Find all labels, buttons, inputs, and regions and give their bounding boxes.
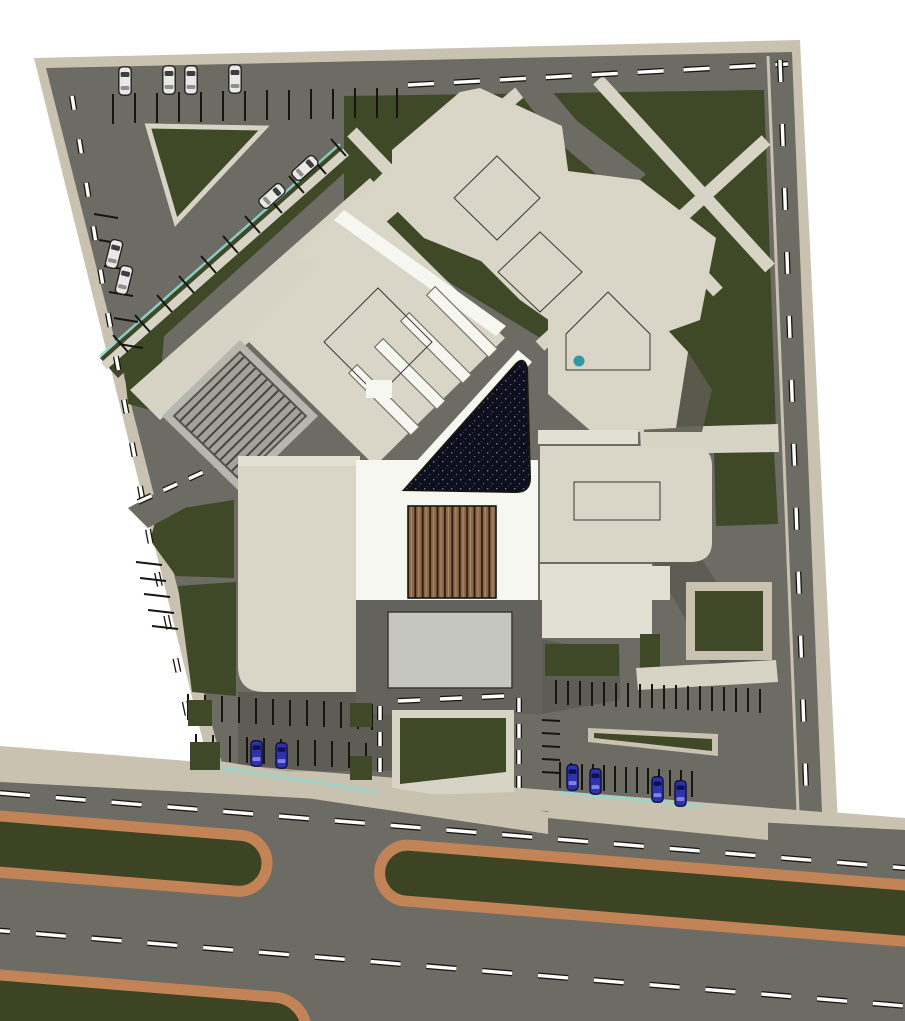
sw-lot-green-4 [350, 756, 372, 780]
parked-car-blue [652, 777, 663, 803]
framed-lawn-inner [695, 591, 763, 651]
lawn-west-c [178, 582, 236, 696]
sw-lot-green-1 [188, 700, 212, 726]
roof-band-east [538, 430, 638, 444]
sw-lot-green-2 [350, 703, 372, 727]
roof-south-annex [540, 564, 652, 638]
parked-car-white [185, 66, 197, 94]
parked-car-blue [675, 781, 686, 807]
roof-southeast-rounded [540, 446, 712, 562]
east-lawn-b [640, 634, 660, 672]
parked-car-white [119, 67, 131, 95]
parked-car-white [163, 66, 175, 94]
roof-southwest-rounded [238, 456, 360, 692]
parked-car-blue [276, 743, 287, 769]
parked-car-blue [590, 769, 601, 795]
skylight-teal-dot [574, 356, 585, 367]
roof-southwest-trim [238, 456, 360, 466]
parked-car-blue [567, 765, 578, 791]
entry-court [380, 696, 519, 796]
entrance-canopy [388, 612, 512, 688]
site-plan-screenshot [0, 0, 905, 1021]
parked-car-white [229, 65, 241, 93]
sw-lot-green-3 [190, 742, 220, 770]
parked-car-blue [251, 741, 262, 767]
louver-roof [408, 506, 496, 598]
east-lawn-a [545, 644, 619, 676]
lawn-right-strip [714, 450, 778, 526]
site-block [34, 40, 838, 840]
skylight-blue-notch [366, 380, 392, 398]
site-plan-drawing [0, 0, 905, 1021]
roof-south-annex-tab [652, 566, 670, 600]
